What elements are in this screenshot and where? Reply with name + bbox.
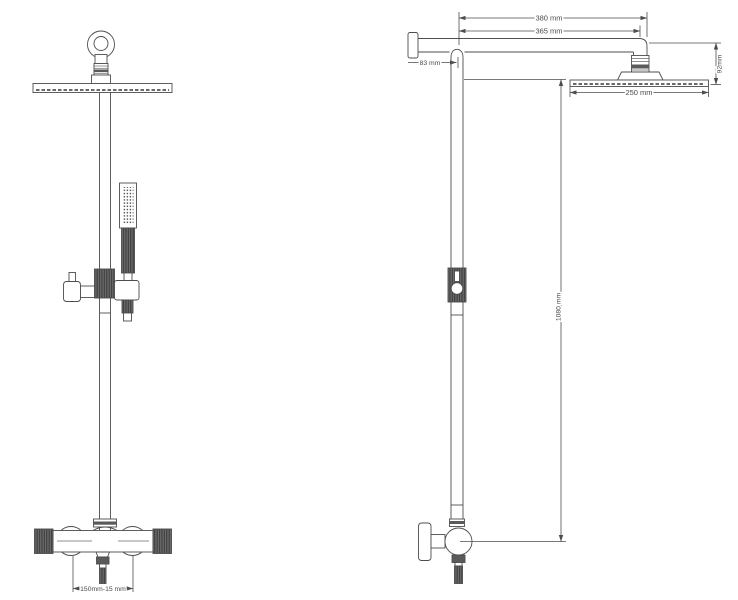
hook-ring — [88, 31, 115, 84]
slider-block-front — [95, 269, 115, 298]
connector-band — [632, 65, 650, 69]
outlet-stub-front — [100, 568, 107, 584]
outlet-stub-side — [455, 566, 463, 584]
front-view: 150mm-15 mm — [33, 31, 172, 593]
wand-holder — [115, 281, 140, 301]
dim-arm-to-head-label: 365 mm — [535, 27, 562, 36]
dim-head-width-label: 250 mm — [625, 88, 652, 97]
riser-pipe-front — [100, 93, 111, 531]
dim-wall-to-riser-label: 83 mm — [420, 60, 441, 67]
dim-arm-overall-label: 380 mm — [535, 14, 562, 23]
coupling-band-side — [450, 521, 465, 524]
technical-drawing-page: 150mm-15 mm — [0, 0, 738, 600]
dim-valve-centres-label: 150mm-15 mm — [80, 586, 126, 593]
wall-flange — [408, 33, 418, 59]
hose-connector — [122, 300, 133, 313]
dim-riser-height-label: 1080 mm — [556, 293, 563, 322]
dim-head-drop-label: 92mm — [717, 54, 724, 73]
valve-knob-right — [153, 529, 172, 554]
thread-band — [94, 70, 108, 73]
mixer-valve-front — [35, 519, 172, 584]
side-view: 83 mm 380 mm 365 mm 92mm 250 mm — [408, 12, 724, 584]
technical-drawing-canvas: 150mm-15 mm — [0, 0, 738, 600]
rain-head-front — [33, 84, 172, 93]
shower-arm — [408, 33, 647, 63]
wand-handle — [122, 228, 135, 273]
pipe-coupling-band — [94, 522, 117, 525]
dim-riser-height: 1080 mm — [460, 80, 566, 542]
wall-stub — [431, 535, 445, 549]
hand-shower — [115, 183, 140, 321]
riser-bend — [451, 49, 463, 62]
wall-plate — [419, 523, 432, 561]
head-mount — [618, 72, 664, 80]
valve-knob-left — [35, 529, 54, 554]
slider-knob — [451, 283, 463, 295]
mixer-valve-side — [419, 519, 473, 584]
rain-head-side — [570, 56, 709, 87]
spray-face — [123, 187, 134, 224]
dim-arm-to-head: 365 mm — [459, 26, 640, 38]
dim-wall-to-riser: 83 mm — [408, 57, 458, 68]
slider-block-side — [448, 268, 466, 302]
outlet-nut-side — [452, 555, 465, 563]
outlet-nut-front — [97, 557, 110, 564]
dim-head-width: 250 mm — [570, 87, 709, 97]
diverter-knob — [64, 273, 95, 302]
